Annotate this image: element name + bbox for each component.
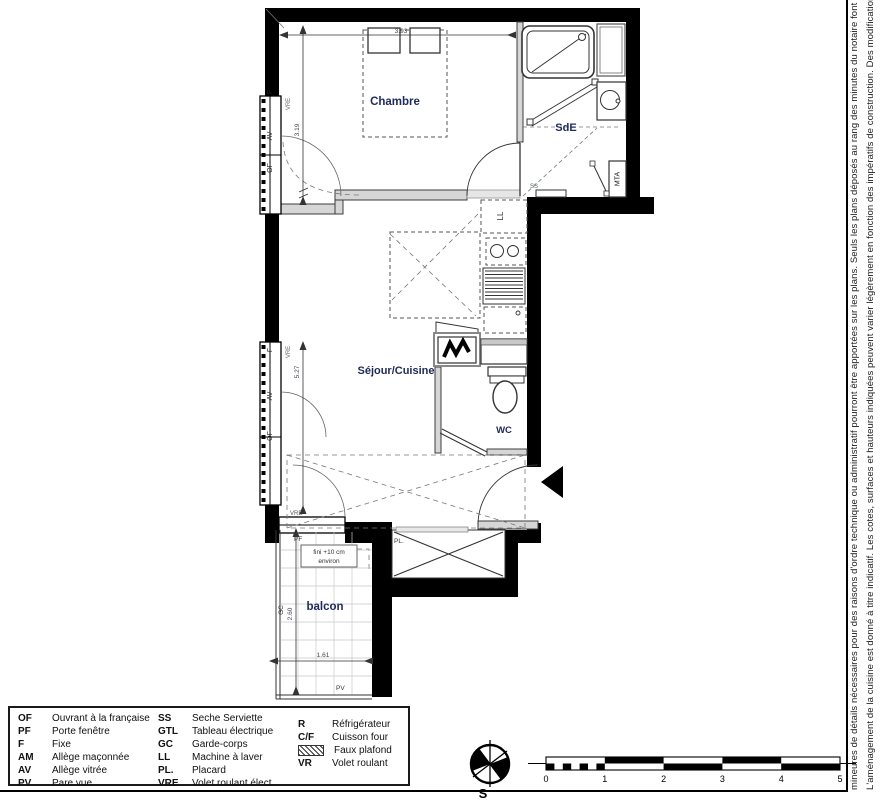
toilet: [488, 367, 526, 413]
legend-column-2: SSSeche Serviette GTLTableau électrique …: [158, 712, 296, 790]
legend-abbr: PF: [18, 726, 52, 737]
legend-label: Cuisson four: [332, 732, 408, 743]
pl-label: PL.: [394, 538, 404, 545]
legend-row: OFOuvrant à la française: [18, 712, 156, 725]
scale-bar-ticks: 0 1 2 3 4 5: [543, 774, 842, 784]
floorplan-drawing: MTA F AV OF VRE F AV OF VRE VRE PF: [0, 0, 880, 800]
floorplan-page: { "plan": { "rooms": { "chambre": "Chamb…: [0, 0, 880, 800]
ll-label: LL: [496, 211, 505, 220]
sink-unit: [434, 322, 480, 366]
scale-tick: 0: [543, 774, 548, 784]
nightstand: [410, 28, 440, 53]
legend-label: Garde-corps: [192, 739, 296, 750]
chambre-door: [467, 143, 520, 196]
window1-av-label: AV: [267, 131, 274, 140]
legend-row: PFPorte fenêtre: [18, 725, 156, 738]
dim-balcon-width: 1.61: [317, 652, 330, 659]
scale-tick: 4: [779, 774, 784, 784]
washbasin: [597, 82, 626, 120]
disclaimer-line-2: mineures de détails nécessaires pour des…: [847, 0, 863, 790]
legend-label: Pare vue: [52, 778, 156, 789]
legend-abbr: AM: [18, 752, 52, 763]
room-label-sde: SdE: [555, 122, 576, 134]
legend-abbr: AV: [18, 765, 52, 776]
dim-sejour-depth: 5.27: [294, 365, 301, 378]
chambre-door-threshold: [467, 190, 520, 198]
legend-column-3: RRéfrigérateur C/FCuisson four Faux plaf…: [298, 718, 408, 770]
scale-tick: 5: [837, 774, 842, 784]
compass-north-arrow: [471, 740, 510, 787]
entrance-door: [478, 465, 538, 529]
legend-label: Allège maçonnée: [52, 752, 156, 763]
entrance-arrow-icon: [541, 466, 563, 498]
room-label-balcon: balcon: [306, 601, 343, 613]
room-label-wc: WC: [496, 425, 512, 436]
finish-note-line1: fini +10 cm: [313, 549, 345, 556]
placard: [392, 527, 505, 578]
legend-abbr: F: [18, 739, 52, 750]
window1-vre-label: VRE: [286, 98, 292, 110]
scale-tick: 1: [602, 774, 607, 784]
legend-label: Volet roulant: [332, 758, 408, 769]
balcony-door-pf: [279, 465, 345, 533]
legend-box: OFOuvrant à la française PFPorte fenêtre…: [8, 706, 410, 786]
wc-door: [440, 429, 487, 456]
legend-label: Volet roulant élect.: [192, 778, 296, 789]
legend-row: LLMachine à laver: [158, 751, 296, 764]
legend-abbr: SS: [158, 713, 192, 724]
ss-label: SS: [530, 184, 538, 190]
finish-note-line2: environ: [318, 558, 340, 565]
faux-plafond-curve: [283, 142, 360, 195]
pf-vre-label: VRE: [290, 511, 302, 517]
legend-label: Tableau électrique: [192, 726, 296, 737]
legend-row: SSSeche Serviette: [158, 712, 296, 725]
legend-row: GCGarde-corps: [158, 738, 296, 751]
legend-label: Réfrigérateur: [332, 719, 408, 730]
faux-plafond-diagonals: [390, 214, 478, 316]
scale-tick: 3: [720, 774, 725, 784]
legend-label: Allège vitrée: [52, 765, 156, 776]
legend-abbr: C/F: [298, 732, 332, 743]
pv-label: PV: [336, 685, 345, 692]
legend-abbr: PV: [18, 778, 52, 789]
bed: [363, 28, 447, 137]
scale-bar: [528, 757, 856, 770]
legend-row: GTLTableau électrique: [158, 725, 296, 738]
legend-abbr: R: [298, 719, 332, 730]
legend-label: Fixe: [52, 739, 156, 750]
legend-abbr: VR: [298, 758, 332, 769]
legend-label: Faux plafond: [334, 745, 408, 756]
disclaimer-line-1: L'aménagement de la cuisine est donné à …: [863, 0, 879, 790]
room-label-chambre: Chambre: [370, 96, 420, 108]
refrigerator: [484, 307, 526, 333]
window2-of-label: OF: [267, 431, 274, 441]
faux-plafond-hatch-swatch: [298, 745, 324, 756]
legend-abbr: VRE: [158, 778, 192, 789]
legend-label: Seche Serviette: [192, 713, 296, 724]
cooktop: [486, 238, 526, 265]
legend-abbr: GC: [158, 739, 192, 750]
window-sejour: [260, 342, 326, 505]
legend-row: AMAllège maçonnée: [18, 751, 156, 764]
legend-row: RRéfrigérateur: [298, 718, 408, 731]
window1-of-label: OF: [267, 163, 274, 173]
window1-f-label: F: [267, 90, 274, 94]
legend-label: Machine à laver: [192, 752, 296, 763]
legend-row: PVPare vue: [18, 777, 156, 790]
legend-abbr: PL.: [158, 765, 192, 776]
sde-door: [527, 79, 598, 126]
kitchen-worktop: [481, 339, 527, 364]
legend-row: FFixe: [18, 738, 156, 751]
disclaimer-sidebar: L'aménagement de la cuisine est donné à …: [843, 0, 879, 790]
dim-chambre-depth: 3.19: [294, 123, 301, 136]
towel-radiator-ss: [536, 190, 566, 197]
legend-label: Ouvrant à la française: [52, 713, 156, 724]
duct-shaft: [597, 24, 625, 76]
window-chambre: [260, 96, 341, 214]
legend-abbr: GTL: [158, 726, 192, 737]
kitchen-counter-projection: [390, 232, 480, 318]
compass-south-label: S: [479, 786, 488, 800]
window2-f-label: F: [267, 348, 274, 352]
window2-vre-label: VRE: [286, 346, 292, 358]
shower: [522, 26, 594, 78]
oven-column: [483, 268, 525, 304]
legend-row: C/FCuisson four: [298, 731, 408, 744]
dim-balcon-depth: 2.60: [287, 607, 294, 620]
legend-label: Placard: [192, 765, 296, 776]
frame-divider-horizontal: [0, 790, 847, 792]
legend-row: AVAllège vitrée: [18, 764, 156, 777]
legend-abbr: LL: [158, 752, 192, 763]
legend-abbr: OF: [18, 713, 52, 724]
dim-chambre-width: 3.93: [395, 28, 408, 35]
legend-row: VRVolet roulant: [298, 757, 408, 770]
scale-tick: 2: [661, 774, 666, 784]
room-label-sejour: Séjour/Cuisine: [357, 365, 434, 377]
window2-av-label: AV: [267, 391, 274, 400]
gc-label: GC: [278, 605, 285, 615]
legend-row: PL.Placard: [158, 764, 296, 777]
legend-row: VREVolet roulant élect.: [158, 777, 296, 790]
legend-row: Faux plafond: [298, 744, 408, 757]
legend-label: Porte fenêtre: [52, 726, 156, 737]
mta-label: MTA: [614, 172, 621, 187]
legend-column-1: OFOuvrant à la française PFPorte fenêtre…: [18, 712, 156, 790]
